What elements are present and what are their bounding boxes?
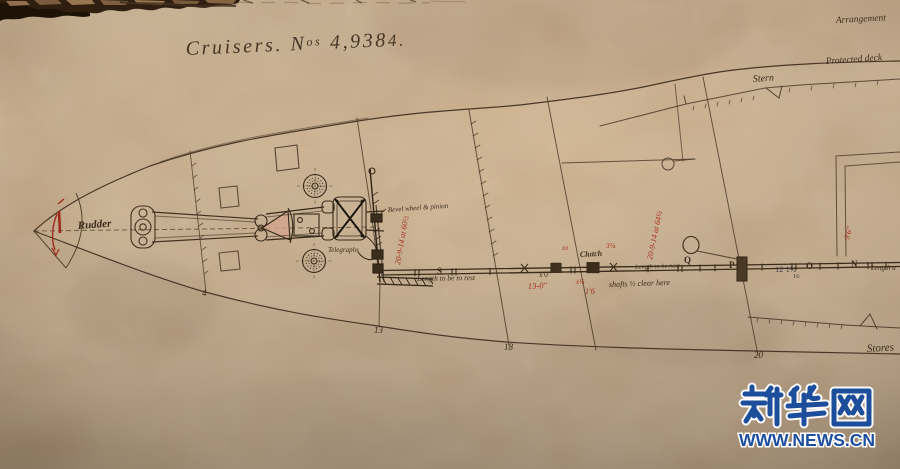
svg-text:Clutch: Clutch [580, 249, 603, 259]
svg-text:P: P [729, 260, 735, 270]
svg-text:18: 18 [504, 342, 514, 352]
svg-text:O: O [806, 261, 813, 271]
svg-text:20: 20 [754, 350, 764, 360]
svg-text:3¼: 3¼ [605, 241, 616, 250]
svg-text:N: N [851, 259, 858, 269]
svg-text:13: 13 [374, 325, 384, 335]
svg-text:x'0": x'0" [539, 270, 551, 279]
svg-text:R: R [551, 262, 558, 272]
svg-text:x¼: x¼ [575, 278, 585, 286]
svg-text:13-0": 13-0" [528, 280, 548, 291]
svg-text:Length a: Length a [870, 264, 896, 272]
svg-text:xx: xx [561, 244, 569, 252]
svg-text:4: 4 [202, 288, 207, 298]
svg-text:16: 16 [793, 273, 800, 280]
svg-text:S: S [437, 266, 442, 276]
svg-text:Stores: Stores [867, 342, 895, 355]
svg-text:WWW.NEWS.CN: WWW.NEWS.CN [739, 430, 875, 450]
svg-text:Stern: Stern [752, 73, 774, 85]
svg-text:Telegraphs: Telegraphs [328, 246, 359, 254]
svg-text:Rudder: Rudder [76, 218, 112, 232]
svg-text:Length to be to rest: Length to be to rest [416, 273, 476, 283]
svg-text:1'6: 1'6 [585, 287, 595, 296]
svg-text:Q: Q [684, 255, 691, 265]
